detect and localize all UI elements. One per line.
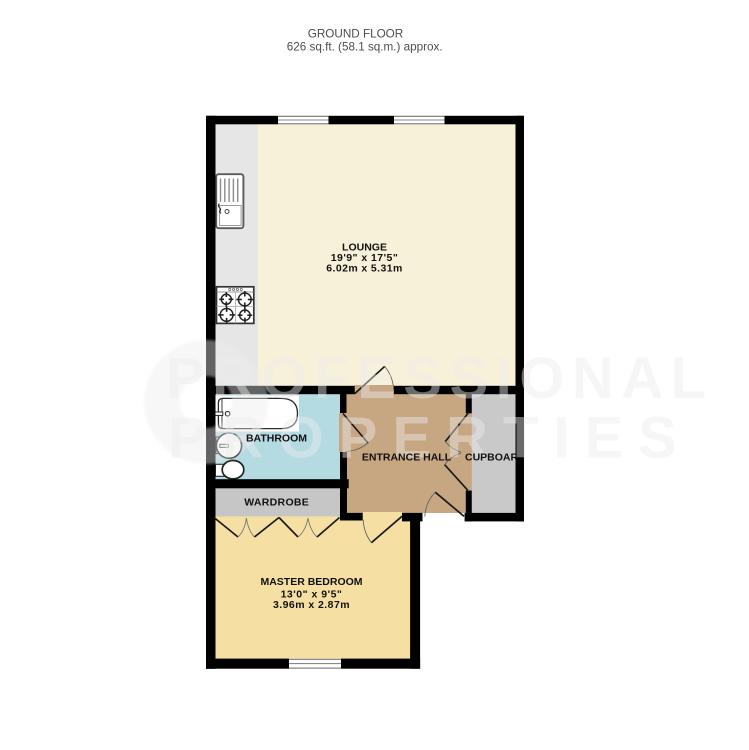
svg-text:3.96m x 2.87m: 3.96m x 2.87m — [273, 599, 350, 611]
svg-text:GROUND FLOOR: GROUND FLOOR — [308, 28, 403, 41]
svg-text:BATHROOM: BATHROOM — [246, 433, 307, 445]
svg-text:6.02m x 5.31m: 6.02m x 5.31m — [326, 262, 402, 274]
svg-text:WARDROBE: WARDROBE — [244, 497, 309, 509]
svg-text:MASTER BEDROOM: MASTER BEDROOM — [260, 576, 362, 588]
svg-text:ENTRANCE HALL: ENTRANCE HALL — [362, 452, 452, 464]
svg-text:626 sq.ft. (58.1 sq.m.) approx: 626 sq.ft. (58.1 sq.m.) approx. — [287, 40, 443, 53]
